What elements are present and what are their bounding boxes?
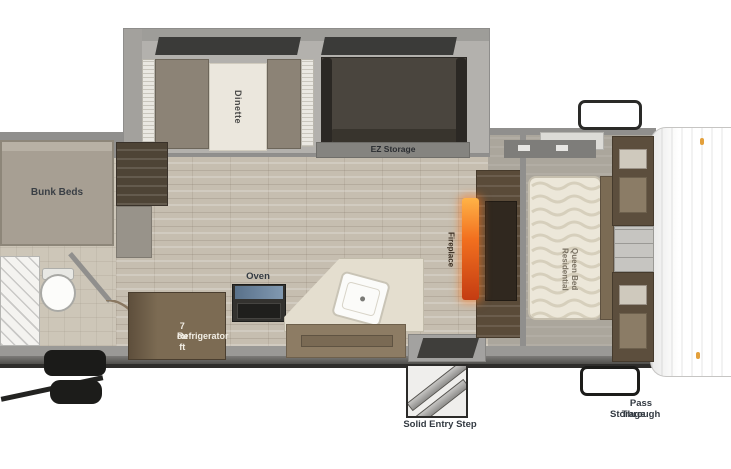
kitchen-cabinet [286, 324, 406, 358]
floorplan-canvas: Dinette EZ Storage Bunk Beds 7 cu ft Ref… [0, 0, 731, 469]
oven-door [237, 303, 281, 319]
wardrobe-cabinet [116, 142, 168, 206]
dinette-bench [155, 59, 209, 149]
window [321, 37, 457, 55]
pass-through-door-top [578, 100, 642, 130]
wardrobe [612, 136, 654, 226]
sofa-front [332, 129, 458, 142]
rear-top-wall [0, 132, 114, 140]
wheel [44, 350, 106, 376]
dinette-armrest [301, 59, 314, 147]
queen-bed: Residential Queen Bed [528, 176, 602, 320]
window [155, 37, 301, 55]
dinette-label: Dinette [233, 90, 243, 124]
bunk-beds-label: Bunk Beds [31, 187, 83, 199]
entry-landing [408, 334, 486, 362]
tv [485, 201, 517, 301]
entry-step-label: Solid Entry Step [368, 420, 512, 431]
dresser [116, 206, 152, 258]
pass-through-label: Pass Through Storage [548, 399, 672, 410]
bedroom-divider-wall [520, 128, 526, 346]
wardrobe [612, 272, 654, 362]
overhead-cabinet [504, 140, 596, 158]
fireplace [462, 198, 479, 300]
marker-light-icon [696, 352, 700, 359]
slideout-room: Dinette [123, 28, 490, 154]
sofa [321, 57, 467, 145]
marker-light-icon [700, 138, 704, 145]
dinette-table: Dinette [209, 63, 267, 151]
dinette-armrest [142, 59, 155, 147]
front-cap [650, 127, 731, 377]
cooktop-glass [235, 286, 283, 299]
refrigerator: 7 cu ft Refrigerator [128, 292, 226, 360]
entry-mat [417, 338, 479, 358]
shower [0, 256, 40, 346]
entry-step [406, 364, 468, 418]
stove-oven [232, 284, 286, 322]
slideout-side-wall [124, 29, 142, 153]
entertainment-center [476, 170, 524, 338]
dinette-bench [267, 59, 301, 149]
pass-through-door-bottom [580, 366, 640, 396]
sofa-back-cushions [332, 60, 458, 94]
toilet [40, 274, 76, 312]
oven-label: Oven [228, 272, 288, 283]
fireplace-label: Fireplace [444, 202, 458, 298]
bed-steps [614, 226, 654, 272]
bunk-beds: Bunk Beds [0, 140, 114, 246]
wheel [50, 380, 102, 404]
ez-storage-bar: EZ Storage [316, 142, 470, 158]
ez-storage-label: EZ Storage [371, 145, 416, 155]
